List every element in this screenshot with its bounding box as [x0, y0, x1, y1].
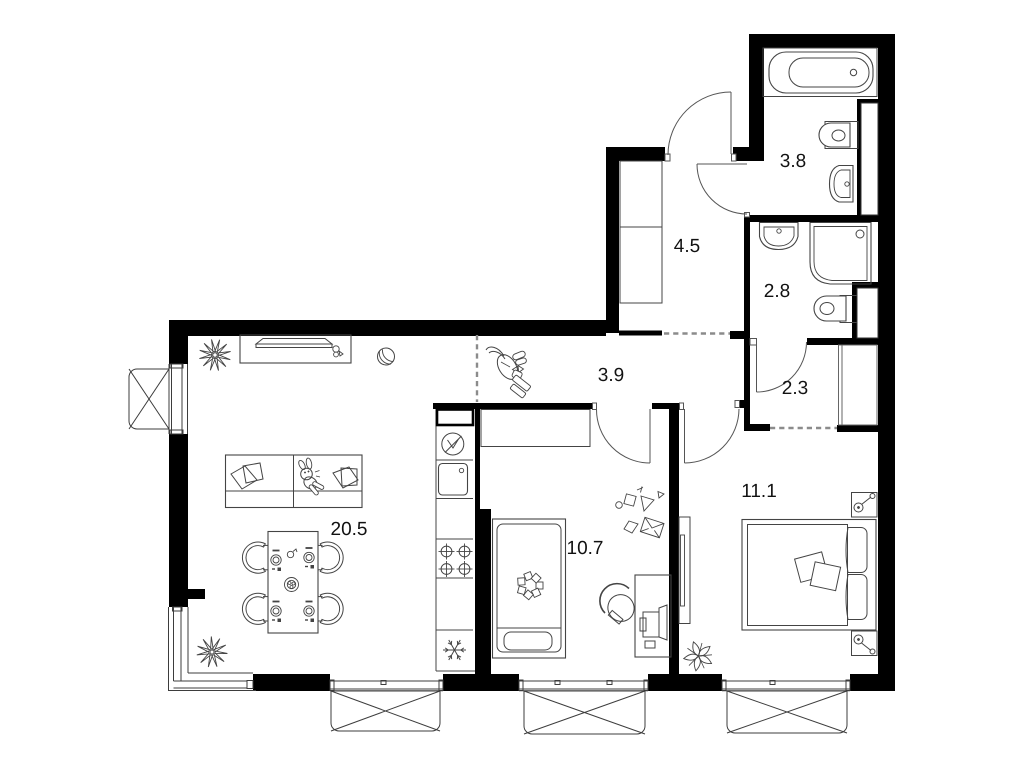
svg-text:20.5: 20.5 — [331, 519, 368, 540]
svg-text:10.7: 10.7 — [567, 538, 604, 559]
svg-text:2.3: 2.3 — [782, 378, 808, 399]
svg-text:2.8: 2.8 — [764, 281, 790, 302]
svg-text:11.1: 11.1 — [741, 481, 777, 502]
svg-text:4.5: 4.5 — [674, 236, 700, 257]
svg-text:3.9: 3.9 — [598, 365, 624, 386]
svg-text:3.8: 3.8 — [780, 151, 806, 172]
